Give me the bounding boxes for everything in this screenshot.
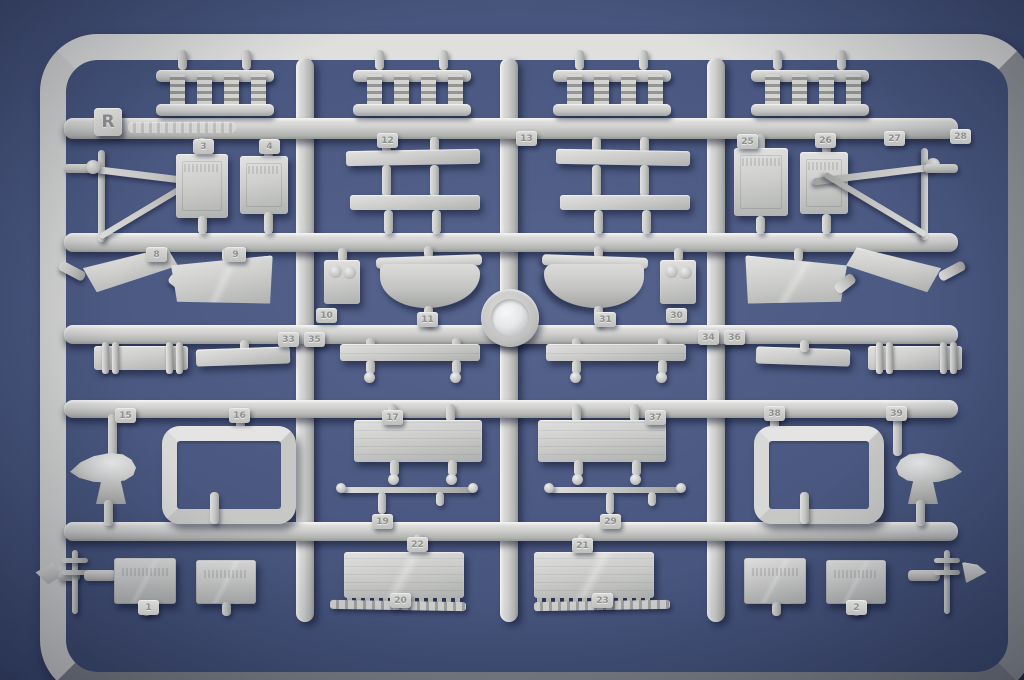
winch-block [660, 260, 696, 304]
sprue-gate [800, 340, 809, 352]
elbow-runner [84, 570, 116, 581]
part-number-chip: 17 [382, 410, 403, 425]
gate-ball [656, 372, 667, 383]
gate-ball [570, 372, 581, 383]
sprue-gate [264, 212, 273, 234]
mast-crossbar [62, 558, 88, 563]
pipe-rib [876, 342, 883, 374]
track-link-set [353, 66, 471, 120]
part-number-chip: 9 [225, 247, 246, 262]
equipment-box [240, 156, 288, 214]
runner-horizontal-5 [64, 522, 958, 541]
part-number-chip: 30 [666, 308, 687, 323]
ships-boat-hull [542, 252, 646, 310]
sprue-gate [430, 165, 439, 197]
pipe-rib [886, 342, 893, 374]
flat-panel [196, 560, 256, 604]
deck-strip [556, 149, 690, 166]
sprue-gate [756, 216, 765, 234]
sprue-gate [210, 492, 219, 524]
pipe-rib [940, 342, 947, 374]
part-number-chip: 36 [724, 330, 745, 345]
davit-right [808, 146, 940, 246]
sprue-gate [384, 210, 393, 234]
deck-strip [346, 149, 480, 166]
track-link-set [553, 66, 671, 120]
sprue-gate [432, 210, 441, 234]
boom-rod [548, 487, 682, 493]
part-number-chip: 27 [884, 131, 905, 146]
deck-strip [560, 195, 690, 210]
part-number-chip: 1 [138, 600, 159, 615]
hatch-frame [754, 426, 884, 524]
pipe-rib [176, 342, 183, 374]
ships-boat-hull [378, 252, 482, 310]
serrated-deck-panel [534, 552, 654, 598]
part-number-chip: 20 [390, 593, 411, 608]
sprue-gate [772, 602, 781, 616]
part-number-chip: 39 [886, 406, 907, 421]
sprue-gate [382, 165, 391, 197]
gate-ball [630, 474, 641, 485]
gate-ball [446, 474, 457, 485]
part-number-chip: 26 [815, 133, 836, 148]
boom-rod [340, 487, 474, 493]
sprue-gate [794, 248, 803, 262]
sprue-center-boss [481, 289, 539, 347]
part-number-chip: 23 [592, 593, 613, 608]
part-number-chip: 8 [146, 247, 167, 262]
part-number-chip: 37 [645, 410, 666, 425]
sprue-letter-tag: R [94, 108, 122, 136]
long-bar [546, 344, 686, 361]
runner-horizontal-4 [64, 400, 958, 418]
part-number-chip: 29 [600, 514, 621, 529]
large-panel [538, 420, 666, 462]
hatch-frame [162, 426, 296, 524]
part-number-chip: 12 [377, 133, 398, 148]
pipe-rib [950, 342, 957, 374]
part-number-chip: 10 [316, 308, 337, 323]
sprue-gate [606, 492, 614, 514]
boom-end [676, 483, 686, 493]
part-number-chip: 22 [407, 537, 428, 552]
part-number-chip: 2 [846, 600, 867, 615]
mast-crossbar [934, 570, 960, 575]
part-number-chip: 28 [950, 129, 971, 144]
slat-piece [196, 346, 291, 366]
gate-ball [450, 372, 461, 383]
flat-panel [114, 558, 176, 604]
sprue-gate [378, 492, 386, 514]
part-number-chip: 31 [595, 312, 616, 327]
part-number-chip: 16 [229, 408, 250, 423]
serrated-deck-panel [344, 552, 464, 598]
long-bar [340, 344, 480, 361]
part-number-chip: 3 [193, 139, 214, 154]
sprue-gate [640, 165, 649, 197]
track-link-set [156, 66, 274, 120]
flat-panel [826, 560, 886, 604]
boom-end [544, 483, 554, 493]
sprue-gate [104, 500, 113, 526]
part-number-chip: 11 [417, 312, 438, 327]
part-number-chip: 21 [572, 538, 593, 553]
sprue-gate [924, 164, 958, 173]
pipe-rib [112, 342, 119, 374]
sprue-gate [436, 492, 444, 506]
flat-panel [744, 558, 806, 604]
part-number-chip: 4 [259, 139, 280, 154]
sprue-gate [198, 216, 207, 234]
gate-ball [388, 474, 399, 485]
gate-ball [364, 372, 375, 383]
part-number-chip: 13 [516, 131, 537, 146]
part-number-chip: 25 [737, 134, 758, 149]
equipment-box [734, 148, 788, 216]
sprue-gate [642, 210, 651, 234]
mast-crossbar [934, 558, 960, 563]
embossed-text-ridge [128, 122, 236, 133]
equipment-box [176, 154, 228, 218]
deck-strip [350, 195, 480, 210]
part-number-chip: 19 [372, 514, 393, 529]
part-number-chip: 38 [764, 406, 785, 421]
sprue-gate [222, 602, 231, 616]
pipe-rib [166, 342, 173, 374]
part-number-chip: 35 [304, 332, 325, 347]
photo-model-sprue: R .tag-r{left:94px;top:108px;} [0, 0, 1024, 680]
boom-end [468, 483, 478, 493]
winch-block [324, 260, 360, 304]
part-number-chip: 34 [698, 330, 719, 345]
part-number-chip: 15 [115, 408, 136, 423]
sprue-gate [592, 165, 601, 197]
boom-end [336, 483, 346, 493]
pipe-rib [102, 342, 109, 374]
track-link-set [751, 66, 869, 120]
sprue-gate [800, 492, 809, 524]
large-panel [354, 420, 482, 462]
part-number-chip: 33 [278, 332, 299, 347]
gate-ball [572, 474, 583, 485]
sprue-gate [648, 492, 656, 506]
sprue-gate [916, 500, 925, 526]
sprue-gate [594, 210, 603, 234]
